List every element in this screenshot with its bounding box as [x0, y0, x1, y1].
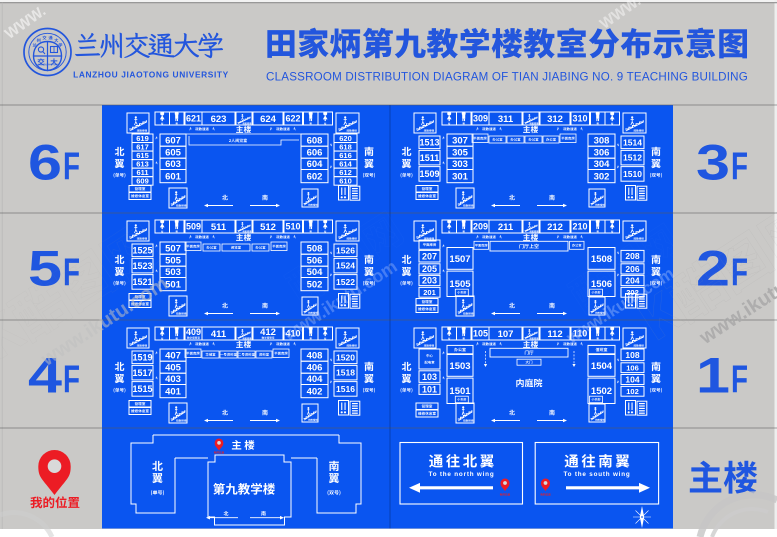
svg-text:408: 408 [307, 350, 323, 361]
svg-text:1506: 1506 [591, 279, 612, 290]
svg-text:208: 208 [625, 251, 639, 261]
svg-text:307: 307 [452, 135, 468, 146]
svg-text:504: 504 [307, 267, 324, 278]
svg-text:102: 102 [626, 387, 639, 396]
svg-text:311: 311 [498, 114, 514, 125]
svg-text:1501: 1501 [449, 386, 471, 397]
svg-text:107: 107 [498, 329, 514, 340]
svg-text:CLASSROOM DISTRIBUTION DIAGRAM: CLASSROOM DISTRIBUTION DIAGRAM OF TIAN J… [266, 71, 748, 84]
svg-text:1526: 1526 [336, 245, 355, 255]
svg-text:512: 512 [260, 222, 276, 233]
svg-text:305: 305 [452, 148, 469, 159]
svg-text:210: 210 [572, 222, 587, 232]
svg-text:301: 301 [452, 171, 469, 182]
svg-text:622: 622 [285, 114, 300, 124]
svg-text:405: 405 [165, 363, 182, 374]
svg-text:402: 402 [307, 386, 323, 397]
svg-text:108: 108 [625, 350, 639, 360]
svg-text:1524: 1524 [336, 261, 355, 271]
svg-text:621: 621 [186, 114, 201, 124]
svg-text:F: F [63, 252, 80, 295]
svg-text:508: 508 [307, 243, 323, 254]
svg-text:404: 404 [307, 374, 324, 385]
svg-text:1514: 1514 [623, 137, 642, 147]
svg-text:101: 101 [422, 385, 437, 395]
svg-text:2: 2 [696, 240, 730, 296]
svg-text:LANZHOU JIAOTONG UNIVERSITY: LANZHOU JIAOTONG UNIVERSITY [73, 69, 229, 79]
svg-text:To the south wing: To the south wing [564, 471, 631, 478]
svg-text:610: 610 [339, 177, 352, 186]
svg-text:607: 607 [165, 135, 181, 146]
svg-text:302: 302 [594, 171, 610, 182]
svg-text:511: 511 [211, 222, 227, 233]
svg-text:1507: 1507 [449, 254, 470, 265]
svg-text:624: 624 [260, 114, 277, 125]
svg-text:506: 506 [307, 256, 323, 267]
svg-text:509: 509 [186, 222, 201, 232]
svg-text:1510: 1510 [623, 169, 642, 179]
svg-text:112: 112 [547, 329, 562, 340]
svg-text:To the north wing: To the north wing [429, 471, 495, 478]
svg-text:505: 505 [165, 256, 182, 267]
svg-text:105: 105 [473, 329, 488, 339]
svg-text:6: 6 [28, 134, 62, 190]
svg-text:303: 303 [452, 159, 468, 170]
svg-text:F: F [63, 146, 80, 189]
svg-text:623: 623 [211, 114, 227, 125]
svg-text:205: 205 [422, 264, 437, 274]
svg-text:1513: 1513 [419, 138, 439, 148]
svg-text:1517: 1517 [132, 368, 152, 378]
svg-text:309: 309 [473, 114, 488, 124]
svg-text:5: 5 [28, 240, 62, 296]
svg-text:F: F [63, 359, 80, 402]
svg-text:207: 207 [422, 251, 437, 261]
svg-text:1516: 1516 [336, 384, 355, 394]
svg-text:605: 605 [165, 148, 182, 159]
svg-text:412: 412 [260, 327, 276, 338]
svg-text:606: 606 [307, 148, 323, 159]
svg-text:507: 507 [165, 243, 181, 254]
svg-text:106: 106 [626, 363, 639, 372]
svg-text:1511: 1511 [420, 153, 440, 163]
svg-text:F: F [731, 252, 748, 295]
svg-text:503: 503 [165, 267, 181, 278]
svg-text:411: 411 [211, 329, 227, 340]
svg-text:F: F [731, 146, 748, 189]
svg-text:1525: 1525 [132, 246, 152, 256]
svg-text:1502: 1502 [591, 386, 612, 397]
svg-text:403: 403 [165, 374, 181, 385]
svg-text:3: 3 [696, 134, 730, 190]
svg-text:103: 103 [422, 372, 437, 382]
svg-text:603: 603 [165, 159, 181, 170]
svg-text:510: 510 [285, 222, 300, 232]
svg-text:401: 401 [165, 386, 182, 397]
svg-text:1519: 1519 [132, 353, 152, 363]
svg-text:F: F [731, 359, 748, 402]
svg-text:308: 308 [594, 135, 610, 146]
svg-text:203: 203 [422, 276, 437, 286]
svg-text:211: 211 [498, 222, 514, 233]
svg-text:312: 312 [547, 114, 563, 125]
svg-text:604: 604 [307, 159, 324, 170]
svg-text:306: 306 [594, 148, 610, 159]
svg-text:409: 409 [186, 327, 201, 337]
svg-text:601: 601 [165, 171, 182, 182]
svg-text:1503: 1503 [449, 361, 470, 372]
svg-text:310: 310 [572, 114, 587, 124]
svg-text:608: 608 [307, 135, 323, 146]
svg-text:1515: 1515 [132, 384, 152, 394]
svg-text:407: 407 [165, 350, 181, 361]
svg-text:602: 602 [307, 171, 323, 182]
svg-text:1509: 1509 [419, 169, 439, 179]
svg-text:209: 209 [473, 222, 488, 232]
svg-text:1518: 1518 [336, 368, 355, 378]
svg-text:406: 406 [307, 363, 323, 374]
svg-text:1505: 1505 [449, 279, 471, 290]
svg-text:1512: 1512 [623, 153, 642, 163]
svg-text:212: 212 [547, 222, 563, 233]
svg-text:304: 304 [594, 159, 611, 170]
svg-text:104: 104 [625, 375, 639, 385]
svg-text:502: 502 [307, 279, 323, 290]
svg-text:1: 1 [696, 347, 730, 403]
svg-text:1508: 1508 [591, 254, 612, 265]
svg-text:1520: 1520 [336, 352, 355, 362]
svg-text:1504: 1504 [591, 361, 613, 372]
svg-text:609: 609 [136, 177, 149, 186]
svg-text:201: 201 [423, 288, 436, 297]
